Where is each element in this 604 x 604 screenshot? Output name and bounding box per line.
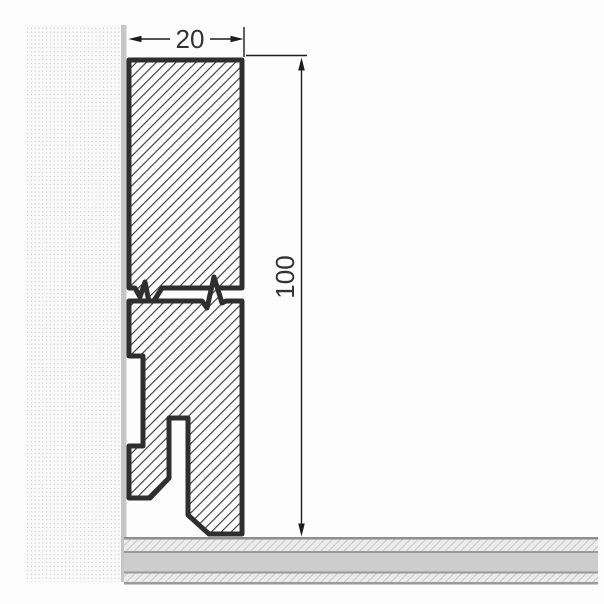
width-dimension-label: 20 (176, 24, 205, 54)
floor-top-line (124, 537, 598, 540)
floor-solid-band (124, 553, 598, 572)
floor-hatched-band-lower (124, 574, 598, 583)
skirting-profile (129, 60, 242, 534)
floor-bottom-line (124, 582, 598, 585)
floor-hatched-band-upper (124, 540, 598, 552)
width-arrow-left (129, 36, 142, 43)
profile-lower-section (129, 277, 242, 534)
wall-stipple-texture (25, 25, 121, 582)
height-arrow-top (298, 58, 305, 71)
profile-upper-section (129, 60, 242, 307)
floor-separator-line-1 (124, 551, 598, 553)
technical-drawing: 20 100 (0, 0, 604, 604)
height-dimension-label: 100 (270, 255, 300, 298)
floor (124, 537, 598, 585)
height-arrow-bottom (298, 524, 305, 537)
width-arrow-right (231, 36, 244, 43)
wall-surface-strip (121, 25, 127, 582)
wall (25, 25, 127, 582)
drawing-svg: 20 100 (0, 0, 604, 604)
floor-separator-line-2 (124, 572, 598, 574)
